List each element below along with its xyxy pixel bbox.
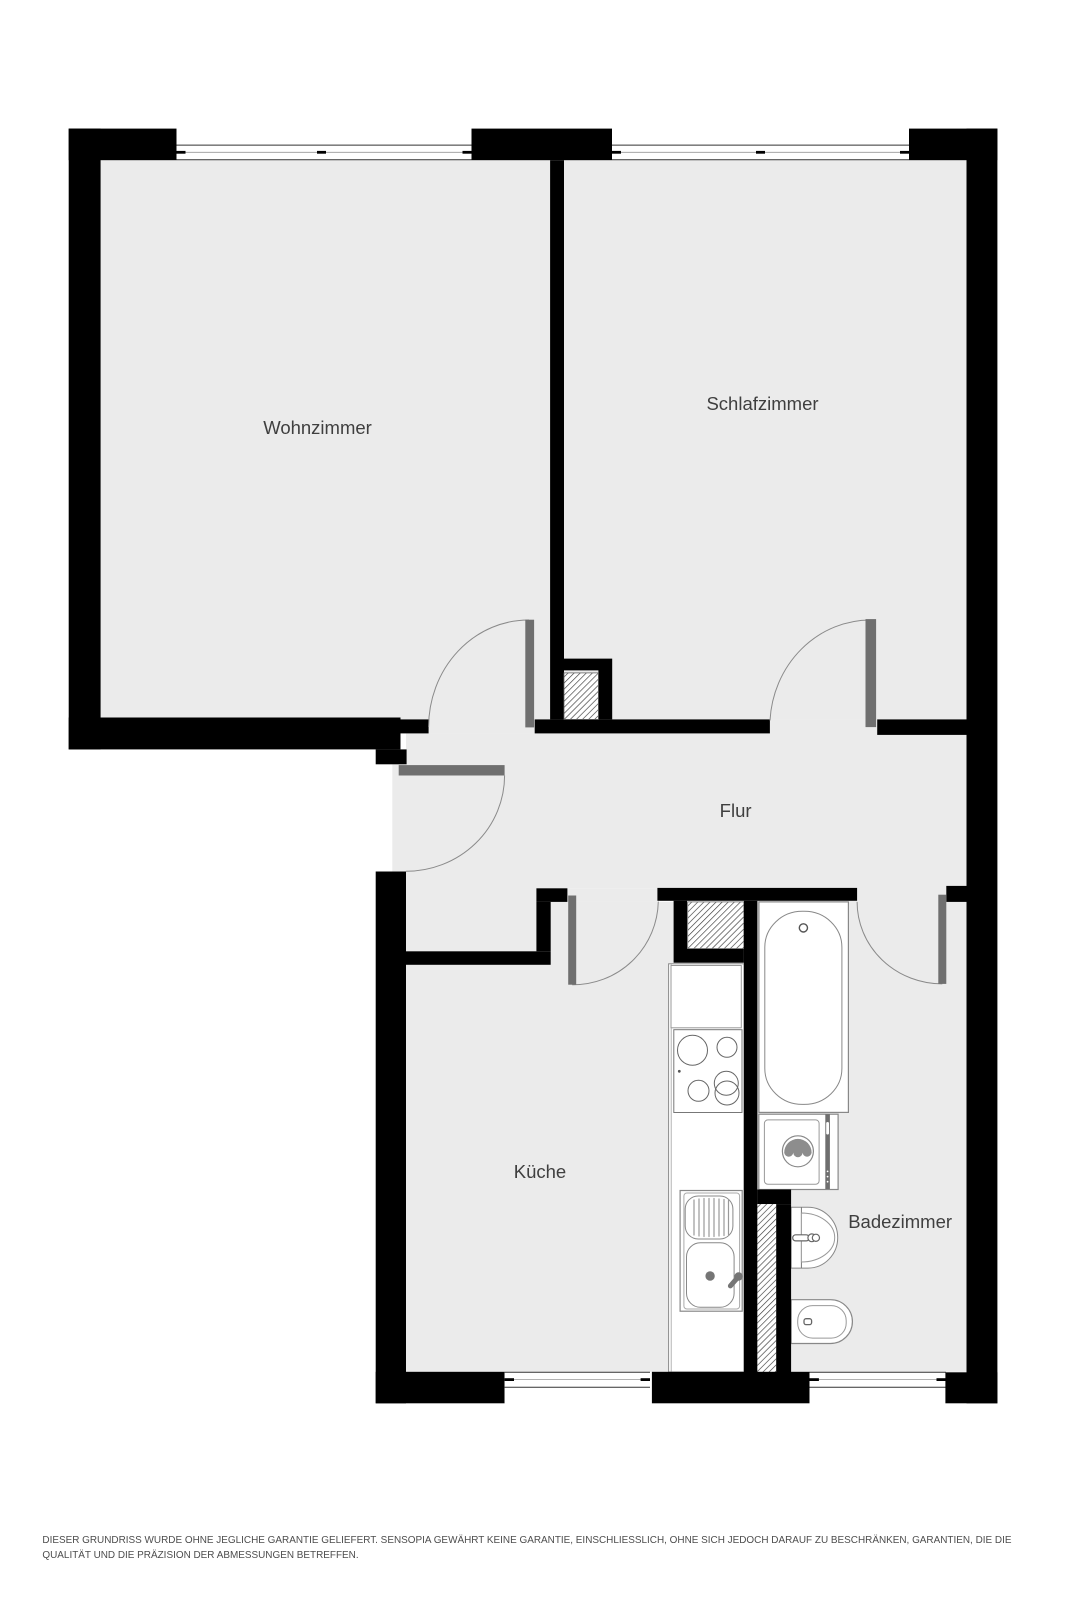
svg-text:DIESER GRUNDRISS WURDE OHNE JE: DIESER GRUNDRISS WURDE OHNE JEGLICHE GAR… <box>42 1535 1011 1546</box>
svg-text:Küche: Küche <box>514 1161 566 1182</box>
svg-text:Flur: Flur <box>720 800 752 821</box>
svg-text:QUALITÄT UND DIE PRÄZISION DER: QUALITÄT UND DIE PRÄZISION DER ABMESSUNG… <box>42 1550 358 1561</box>
svg-text:Wohnzimmer: Wohnzimmer <box>263 417 372 438</box>
svg-text:Badezimmer: Badezimmer <box>848 1211 952 1232</box>
svg-text:Schlafzimmer: Schlafzimmer <box>706 393 818 414</box>
